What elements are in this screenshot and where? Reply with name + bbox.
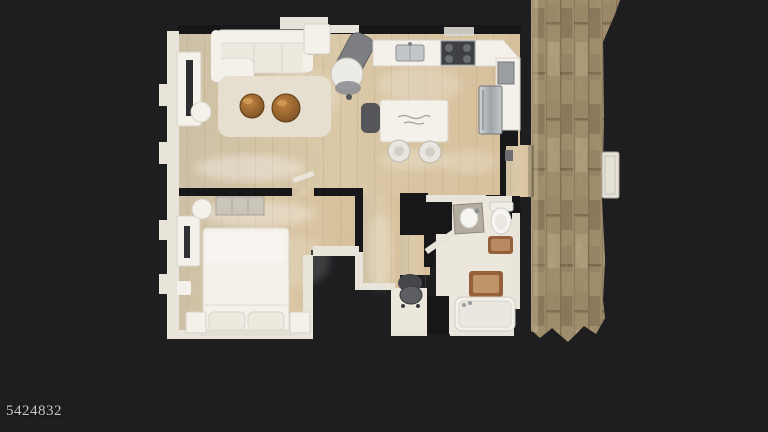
chair-caster <box>401 304 405 308</box>
alcove-bottom-wall <box>391 330 427 336</box>
coffee-table-right <box>272 94 300 122</box>
swivel-chair-base <box>335 81 361 95</box>
bed-headboard <box>200 329 292 336</box>
corridor-sheen <box>369 214 393 290</box>
floorplan-image <box>0 0 768 432</box>
floor-sheen <box>442 150 498 174</box>
bath-mat-center <box>491 239 510 251</box>
bedroom-ext-wall-cap <box>313 246 359 256</box>
listing-photo-canvas: 5424832 <box>0 0 768 432</box>
watermark-text: 5424832 <box>6 403 62 420</box>
bathtub-basin <box>459 301 511 327</box>
bathroom-corner-wall <box>424 202 452 234</box>
bedroom-tv <box>184 226 190 258</box>
toilet-seat <box>495 214 507 230</box>
table-highlight <box>277 100 287 106</box>
bedroom-wall-item <box>177 281 191 295</box>
stove-burner <box>463 55 471 63</box>
kitchen-island <box>380 100 448 142</box>
chair-caster <box>416 304 420 308</box>
nightstand-left <box>186 312 206 333</box>
bath-mat-center <box>473 275 499 293</box>
table-highlight <box>243 98 253 104</box>
swivel-chair-post <box>346 94 352 100</box>
bedroom-round-table <box>192 199 212 219</box>
desk-chair-seat <box>400 286 422 304</box>
refrigerator <box>479 86 502 134</box>
corridor-bottom-cap <box>355 283 395 290</box>
left-window-tab <box>159 274 169 294</box>
tub-faucet <box>462 303 466 307</box>
bedroom-door-opening <box>292 188 314 196</box>
bedroom-corridor-wall <box>355 195 363 253</box>
bath-tub-gap-wall <box>427 296 449 334</box>
entry-wall-upper <box>500 128 518 146</box>
range-hood <box>444 27 474 36</box>
sofa-arm-left <box>211 30 221 82</box>
coffee-table-left <box>240 94 264 118</box>
living-bedroom-wall <box>177 188 363 196</box>
stove-burner <box>445 55 453 63</box>
corridor-bath-wall <box>400 193 428 235</box>
floor-sheen <box>195 155 305 181</box>
sink-faucet <box>475 209 480 214</box>
floor-sheen <box>378 67 462 103</box>
stove-burner <box>445 44 453 52</box>
closet-dresser <box>216 197 264 215</box>
left-window-tab <box>159 84 169 106</box>
left-window-tab <box>159 220 169 240</box>
bar-stool-center <box>425 147 435 157</box>
tub-faucet <box>468 301 472 305</box>
bathroom-top-wall <box>426 195 486 202</box>
top-window-sill <box>327 25 359 33</box>
sink-faucet <box>408 42 412 46</box>
nightstand-right <box>290 312 310 333</box>
entry-threshold-shadow <box>528 145 534 197</box>
entry-side-item <box>505 150 513 161</box>
console-desk <box>304 24 330 54</box>
bed-duvet-fold <box>207 232 285 262</box>
bar-stool-center <box>394 146 404 156</box>
bathroom-right-wall <box>512 213 520 309</box>
left-window-tab <box>159 142 169 164</box>
bed-pillow-left <box>209 312 245 330</box>
round-accent-table <box>191 102 211 122</box>
stove-burner <box>463 44 471 52</box>
bed-pillow-right <box>248 312 284 330</box>
island-side-chair <box>361 103 380 133</box>
wall-oven <box>498 62 514 84</box>
